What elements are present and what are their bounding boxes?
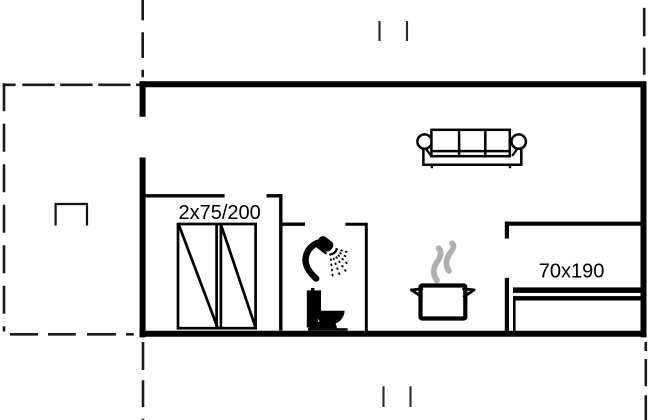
svg-text:70x190: 70x190 xyxy=(539,261,605,283)
svg-text:2x75/200: 2x75/200 xyxy=(179,202,261,224)
